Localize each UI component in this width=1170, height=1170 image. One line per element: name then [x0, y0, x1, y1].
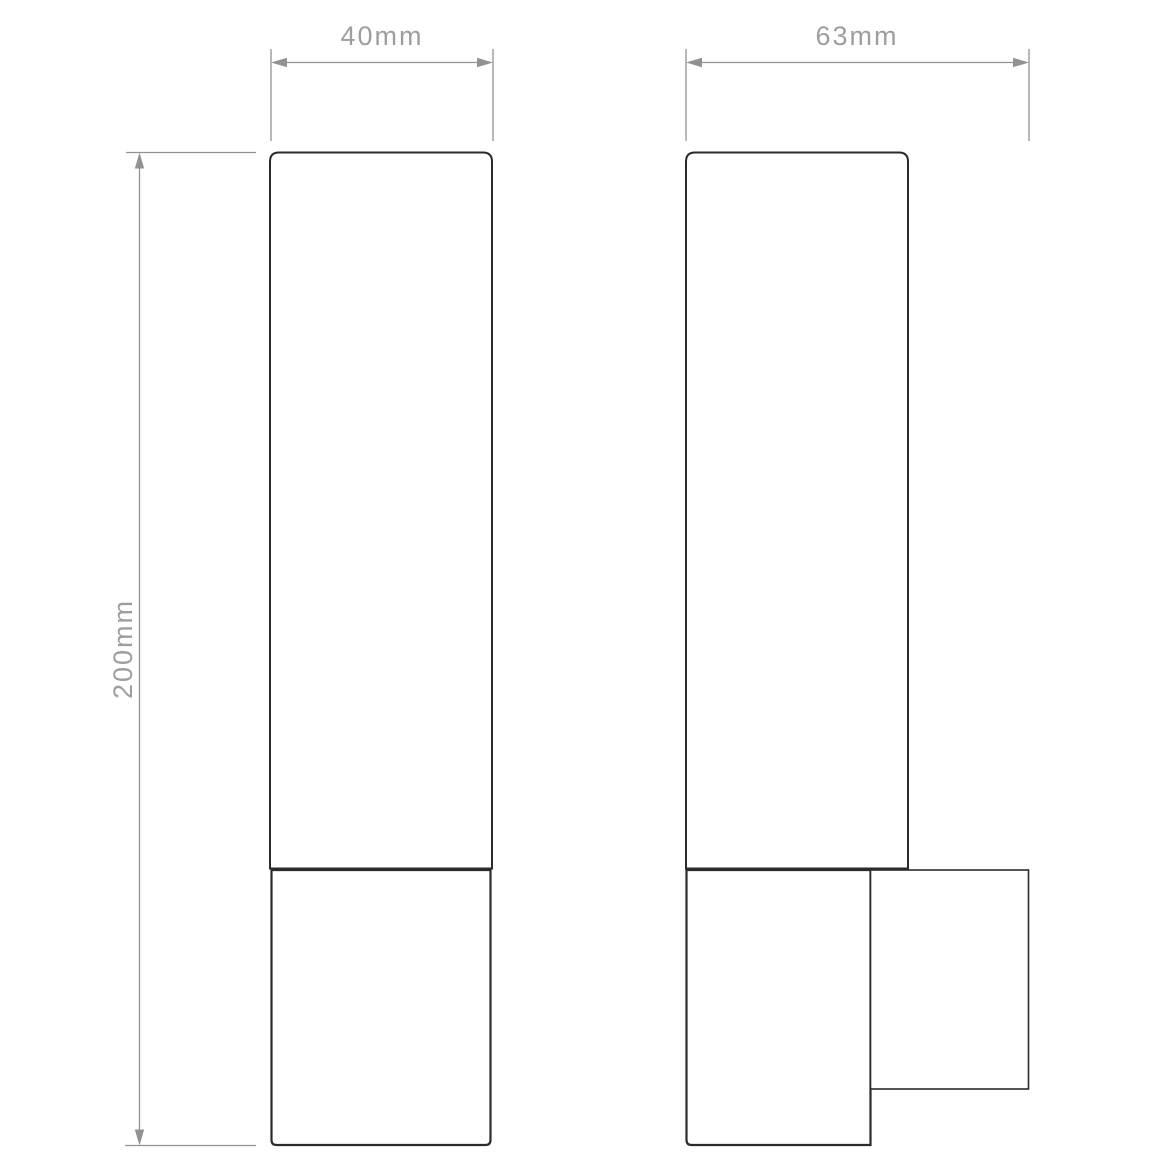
dimension-height: 200mm	[108, 153, 256, 1146]
front-width-arrowhead-right	[477, 58, 493, 67]
side-depth-arrowhead-right	[1013, 58, 1029, 67]
drawing-canvas: 40mm 63mm 200mm	[0, 0, 1170, 1170]
dimension-side-depth: 63mm	[686, 21, 1029, 141]
height-arrowhead-top	[135, 153, 144, 169]
technical-drawing: 40mm 63mm 200mm	[0, 0, 1170, 1170]
side-diffuser-tube	[686, 153, 908, 869]
side-view	[686, 153, 1029, 1146]
height-arrowhead-bottom	[135, 1130, 144, 1146]
side-depth-arrowhead-left	[686, 58, 702, 67]
front-width-label: 40mm	[340, 21, 423, 51]
dimension-front-width: 40mm	[271, 21, 493, 141]
height-label: 200mm	[108, 599, 138, 699]
front-lower-body	[272, 870, 491, 1145]
front-width-arrowhead-left	[271, 58, 287, 67]
front-diffuser-tube	[270, 153, 492, 869]
front-view	[270, 153, 492, 1146]
side-wall-bracket	[871, 870, 1029, 1089]
side-depth-label: 63mm	[815, 21, 898, 51]
side-lower-body	[687, 870, 871, 1145]
